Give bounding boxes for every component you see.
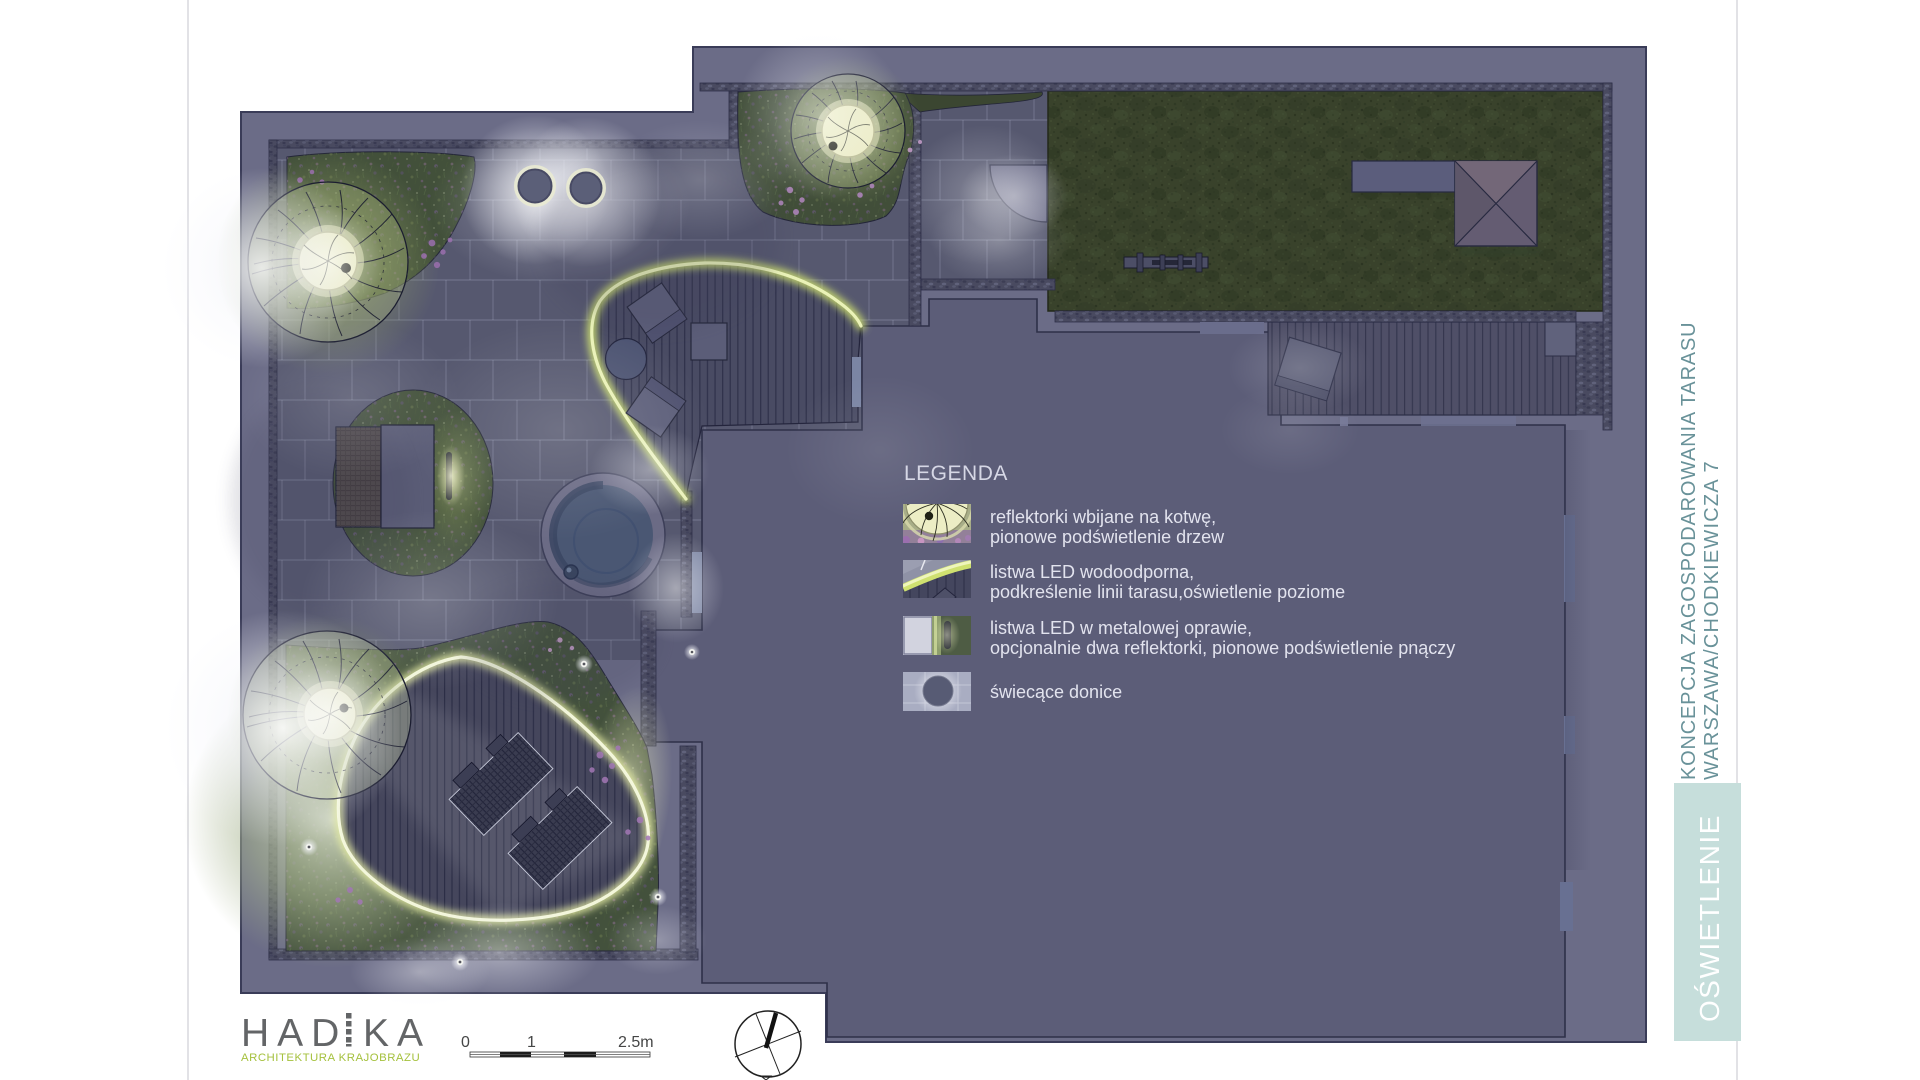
svg-text:listwa LED w metalowej oprawie: listwa LED w metalowej oprawie, [990,618,1252,638]
svg-text:HAD: HAD [241,1012,347,1055]
svg-text:2.5m: 2.5m [618,1034,654,1051]
svg-text:opcjonalnie dwa reflektorki, p: opcjonalnie dwa reflektorki, pionowe pod… [990,638,1455,658]
svg-text:KA: KA [363,1012,431,1055]
svg-text:ARCHITEKTURA KRAJOBRAZU: ARCHITEKTURA KRAJOBRAZU [241,1052,420,1064]
svg-text:świecące donice: świecące donice [990,682,1122,702]
svg-text:reflektorki wbijane na kotwę,: reflektorki wbijane na kotwę, [990,507,1216,527]
svg-text:pionowe podświetlenie drzew: pionowe podświetlenie drzew [990,527,1225,547]
svg-text:listwa LED wodoodporna,: listwa LED wodoodporna, [990,562,1194,582]
svg-text:podkreślenie linii tarasu,oświ: podkreślenie linii tarasu,oświetlenie po… [990,582,1345,602]
svg-text:0: 0 [461,1034,470,1051]
svg-text:WARSZAWA/CHODKIEWICZA 7: WARSZAWA/CHODKIEWICZA 7 [1701,460,1723,780]
svg-text:KONCEPCJA ZAGOSPODAROWANIA TAR: KONCEPCJA ZAGOSPODAROWANIA TARASU [1678,322,1700,780]
svg-text:OŚWIETLENIE: OŚWIETLENIE [1693,814,1725,1022]
svg-text:1: 1 [527,1034,536,1051]
svg-text:LEGENDA: LEGENDA [904,462,1008,485]
